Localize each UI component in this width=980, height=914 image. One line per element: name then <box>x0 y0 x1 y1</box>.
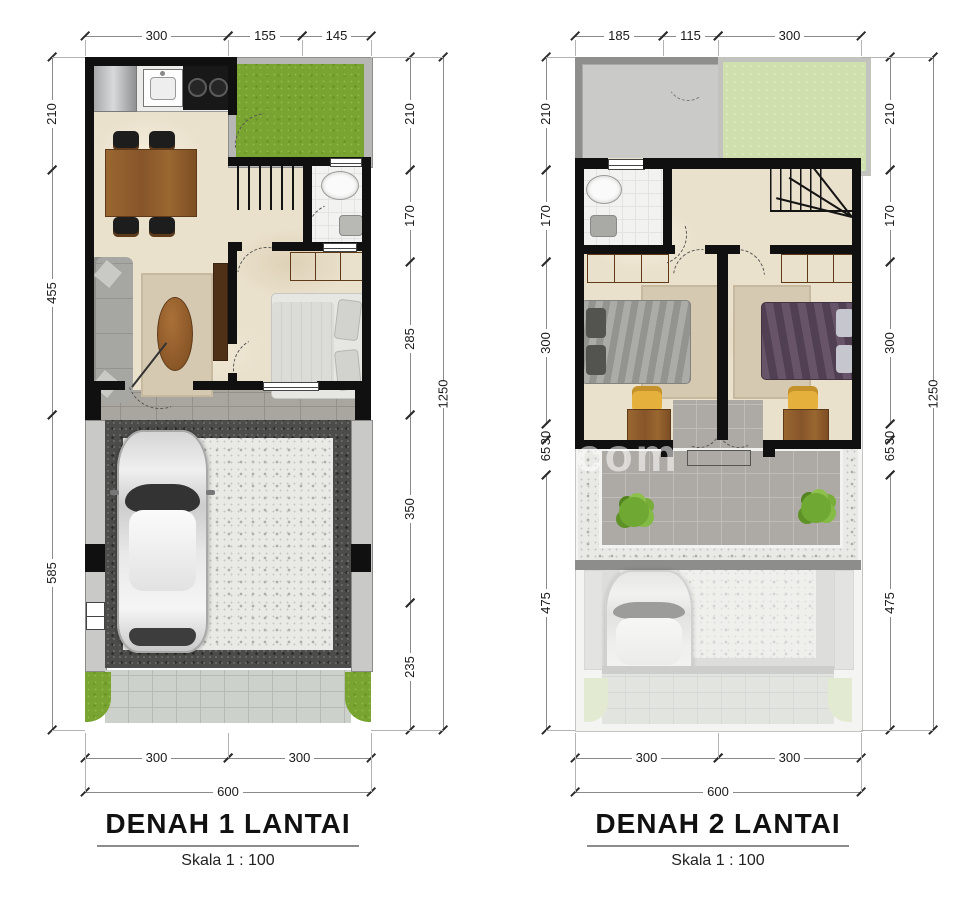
dimension: 210 <box>538 57 554 170</box>
extension-line <box>718 40 719 56</box>
window <box>323 243 357 252</box>
plan-title: DENAH 1 LANTAI <box>97 808 358 847</box>
dimension: 1250 <box>435 57 451 730</box>
pillow <box>586 345 606 375</box>
dimension: 115 <box>663 28 718 44</box>
dimension: 170 <box>538 170 554 262</box>
watermark: com <box>576 428 680 482</box>
refrigerator <box>90 64 137 112</box>
dimension: 585 <box>44 415 60 730</box>
toilet-icon <box>586 175 622 204</box>
side-gate <box>86 602 105 630</box>
dimension: 65 <box>538 440 554 475</box>
dimension-label: 300 <box>775 28 805 44</box>
dimension: 300 <box>85 750 228 766</box>
extension-line <box>663 40 664 56</box>
driveway <box>105 670 351 723</box>
dimension-label: 185 <box>604 28 634 44</box>
dimension-label: 350 <box>402 498 418 520</box>
dimension-label: 300 <box>632 750 662 766</box>
dimension: 210 <box>882 57 898 170</box>
tv-cabinet <box>213 263 228 361</box>
dimension: 210 <box>402 57 418 170</box>
floor-plan-2 <box>575 57 861 730</box>
pillow <box>334 299 363 342</box>
wall <box>362 160 371 390</box>
dimension-label: 300 <box>882 332 898 354</box>
floor-plan-sheet: com 300 155 145 210 455 585 210 170 285 … <box>0 0 980 914</box>
wall <box>763 440 775 457</box>
extension-line <box>85 733 86 792</box>
window <box>608 159 645 170</box>
dimension: 455 <box>44 170 60 415</box>
extension-line <box>575 733 576 792</box>
dimension: 210 <box>44 57 60 170</box>
extension-line <box>861 57 933 58</box>
dimension: 300 <box>882 262 898 424</box>
wall <box>272 242 303 251</box>
extension-line <box>85 40 86 56</box>
dimension: 300 <box>228 750 371 766</box>
extension-line <box>228 40 229 56</box>
dimension: 170 <box>402 170 418 262</box>
dimension-label: 170 <box>882 205 898 227</box>
dimension: 300 <box>575 750 718 766</box>
window <box>263 382 319 391</box>
dimension: 300 <box>718 750 861 766</box>
dimension-label: 210 <box>44 103 60 125</box>
wall <box>303 157 312 251</box>
wall <box>575 158 584 448</box>
dimension-label: 455 <box>44 282 60 304</box>
washbasin-icon <box>590 215 617 237</box>
wall <box>85 57 94 390</box>
dimension-label: 1250 <box>435 379 451 408</box>
extension-line <box>52 730 85 731</box>
dimension-label: 1250 <box>925 379 941 408</box>
dining-chair <box>149 131 175 151</box>
dimension-label: 300 <box>142 28 172 44</box>
floor-plan-1 <box>85 57 371 730</box>
wall <box>663 168 672 245</box>
stove-icon <box>183 64 230 110</box>
plan-scale: Skala 1 : 100 <box>85 852 371 870</box>
carport-column <box>85 544 105 572</box>
balcony-parapet <box>575 560 861 570</box>
wall <box>852 158 861 448</box>
wall <box>228 242 242 251</box>
wall <box>228 251 237 344</box>
dimension-label: 475 <box>882 592 898 614</box>
dimension-label: 600 <box>213 784 243 800</box>
dimension-label: 210 <box>538 103 554 125</box>
extension-line <box>371 733 372 792</box>
dimension-label: 155 <box>250 28 280 44</box>
dimension-label: 170 <box>402 205 418 227</box>
wall <box>85 57 237 66</box>
plan-title: DENAH 2 LANTAI <box>587 808 848 847</box>
extension-line <box>546 57 575 58</box>
extension-line <box>371 40 372 56</box>
dimension-label: 65 <box>882 447 898 461</box>
dimension: 185 <box>575 28 663 44</box>
dimension: 65 <box>882 440 898 475</box>
dimension-label: 145 <box>322 28 352 44</box>
dimension: 300 <box>538 262 554 424</box>
dimension-label: 235 <box>402 656 418 678</box>
toilet-icon <box>321 171 359 200</box>
dimension-label: 600 <box>703 784 733 800</box>
dimension-label: 65 <box>538 447 554 461</box>
bedroom-2-bed <box>761 302 860 380</box>
dimension-label: 300 <box>142 750 172 766</box>
dimension-label: 300 <box>285 750 315 766</box>
plan-2-title-block: DENAH 2 LANTAI Skala 1 : 100 <box>575 808 861 870</box>
dimension: 475 <box>882 475 898 730</box>
wall <box>717 245 728 440</box>
extension-line <box>861 40 862 56</box>
kitchen-sink-icon <box>143 69 183 107</box>
extension-line <box>228 733 229 758</box>
dimension: 300 <box>85 28 228 44</box>
wall <box>193 381 263 390</box>
plan-scale: Skala 1 : 100 <box>575 852 861 870</box>
wall <box>775 440 861 449</box>
dimension-label: 300 <box>538 332 554 354</box>
balcony-step-outline <box>687 450 751 466</box>
wall <box>575 245 675 254</box>
dimension: 1250 <box>925 57 941 730</box>
study-desk <box>783 409 829 442</box>
extension-line <box>52 57 85 58</box>
extension-line <box>546 730 575 731</box>
balcony-plant <box>801 493 831 523</box>
carport-column <box>351 544 371 572</box>
extension-line <box>371 730 443 731</box>
dining-chair <box>113 131 139 151</box>
plan-1-title-block: DENAH 1 LANTAI Skala 1 : 100 <box>85 808 371 870</box>
pillow <box>586 308 606 338</box>
wall <box>770 245 861 254</box>
dimension-label: 210 <box>882 103 898 125</box>
bedroom-1-bed <box>581 300 691 384</box>
dimension-label: 115 <box>676 28 705 44</box>
dimension: 145 <box>302 28 371 44</box>
wall <box>228 57 237 115</box>
staircase <box>770 168 852 245</box>
dimension-label: 170 <box>538 205 554 227</box>
wall <box>643 158 861 169</box>
dimension: 600 <box>575 784 861 800</box>
dimension: 170 <box>882 170 898 262</box>
dimension: 475 <box>538 475 554 730</box>
dimension: 350 <box>402 415 418 603</box>
porch-column <box>355 386 371 420</box>
dimension-label: 300 <box>775 750 805 766</box>
car <box>117 430 208 653</box>
extension-line <box>371 57 443 58</box>
dimension-label: 285 <box>402 328 418 350</box>
extension-line <box>302 40 303 56</box>
extension-line <box>575 40 576 56</box>
dimension: 285 <box>402 262 418 415</box>
bedroom-2-wardrobe <box>781 254 860 283</box>
ghost-lower-floor <box>575 570 861 730</box>
dimension-label: 475 <box>538 592 554 614</box>
extension-line <box>718 733 719 758</box>
dimension: 300 <box>718 28 861 44</box>
dining-table <box>105 149 197 217</box>
balcony-plant <box>619 497 649 527</box>
window <box>330 158 362 167</box>
porch-column <box>85 386 101 420</box>
dimension: 600 <box>85 784 371 800</box>
dimension-label: 585 <box>44 562 60 584</box>
dimension: 155 <box>228 28 302 44</box>
extension-line <box>861 733 862 792</box>
extension-line <box>861 730 933 731</box>
dining-chair <box>149 217 175 237</box>
dining-chair <box>113 217 139 237</box>
dimension: 235 <box>402 603 418 730</box>
dimension-label: 210 <box>402 103 418 125</box>
